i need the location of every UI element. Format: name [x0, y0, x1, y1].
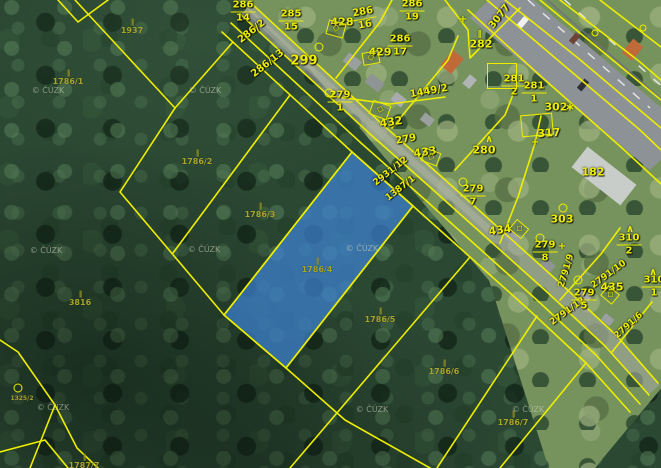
parcel-label: 2791/10 [590, 259, 628, 290]
cuzk-watermark: © ČÚZK [189, 87, 222, 95]
cuzk-watermark: © ČÚZK [30, 247, 63, 255]
forest-parcel-label: ‖1786/4 [302, 258, 333, 274]
parcel-label-fraction: 28614 [231, 1, 256, 24]
forest-caret-icon: ∧ [649, 268, 657, 278]
forest-caret-icon: ∧ [626, 225, 634, 235]
boundary-star-icon: ∗ [565, 102, 574, 113]
parcel-label-fraction: 2795 [572, 289, 597, 312]
cuzk-watermark: © ČÚZK [356, 406, 389, 414]
boundary-cross-icon: + [558, 242, 566, 252]
forest-symbol: ‖ [259, 203, 262, 210]
parcel-label: 299 [290, 55, 317, 68]
forest-symbol: ‖ [83, 454, 86, 461]
parcel-label: 182 [582, 167, 605, 178]
parcel-label: 433 [413, 145, 437, 159]
boundary-cross-icon: + [531, 138, 539, 148]
garage-diamond-icon: ◇ [509, 219, 530, 239]
forest-parcel-label: ‖1786/3 [245, 203, 276, 219]
parcel-label: 282 [470, 39, 493, 50]
forest-symbol: ‖ [316, 258, 319, 265]
forest-parcel-label: ‖1937 [121, 19, 143, 35]
parcel-label-fraction: 3101 [642, 276, 661, 299]
parcel-label: 302 [545, 102, 568, 113]
garage-diamond-icon: ◇ [600, 285, 620, 305]
meadow-parallel-icon: ‖ [478, 30, 481, 38]
forest-parcel-label: 1325/2 [10, 396, 33, 402]
map-viewport[interactable]: 4282994294322794334344353033172802821823… [0, 0, 661, 468]
parcel-label: 1449/2 [409, 84, 449, 101]
parcel-label-fraction: 28619 [400, 0, 425, 23]
forest-parcel-label: ‖1786/1 [53, 70, 84, 86]
building-outline-box [520, 113, 554, 138]
parcel-label-fraction: 28616 [350, 6, 378, 33]
landuse-circle-icon [459, 178, 468, 187]
parcel-label: 432 [379, 115, 403, 129]
forest-parcel-label: ‖1786/5 [365, 308, 396, 324]
parcel-label: 2791/9 [558, 253, 577, 289]
garage-diamond-icon: ◇ [421, 148, 442, 167]
parcel-label: 2791/6 [613, 311, 645, 341]
parcel-label-fraction: 2791 [328, 91, 353, 114]
parcel-label-fraction: 28515 [279, 10, 304, 33]
survey-point-icon [592, 30, 599, 37]
landuse-circle-icon [574, 276, 583, 285]
parcel-label-fraction: 2797 [461, 185, 486, 208]
garage-diamond-icon: ◇ [362, 50, 381, 66]
parcel-label: 286/2 [237, 18, 268, 45]
parcel-label: 1387/1 [385, 175, 418, 203]
landuse-circle-icon [325, 89, 334, 98]
parcel-label: 435 [601, 282, 624, 293]
forest-parcel-label: ‖3816 [69, 291, 91, 307]
forest-symbol: ‖ [67, 70, 70, 77]
parcel-label: 3077 [487, 3, 512, 31]
cuzk-watermark: © ČÚZK [37, 404, 70, 412]
forest-symbol: ‖ [379, 308, 382, 315]
building-outline-box [487, 63, 517, 89]
forest-symbol: ‖ [79, 291, 82, 298]
cuzk-watermark: © ČÚZK [346, 245, 379, 253]
garage-diamond-icon: ◇ [369, 100, 392, 121]
survey-point-icon [640, 25, 647, 32]
parcel-label-fraction: 2811 [522, 82, 547, 105]
parcel-label-fraction: 2798 [533, 241, 558, 264]
parcel-label: 428 [331, 17, 354, 28]
forest-caret-icon: ∧ [485, 135, 493, 145]
parcel-label: 286/13 [250, 48, 286, 80]
boundary-cross-icon: + [459, 15, 467, 25]
forest-symbol: ‖ [443, 360, 446, 367]
parcel-label: 429 [369, 47, 392, 58]
parcel-labels-layer: 4282994294322794334344353033172802821823… [0, 0, 661, 468]
forest-parcel-label: ‖1786/7 [498, 411, 529, 427]
cuzk-watermark: © ČÚZK [512, 406, 545, 414]
parcel-label: 280 [473, 145, 496, 156]
parcel-label-fraction: 3102 [617, 234, 642, 257]
forest-symbol: ‖ [512, 411, 515, 418]
landuse-circle-icon [14, 384, 23, 393]
garage-diamond-icon: ◇ [325, 19, 346, 38]
parcel-label: 317 [537, 127, 561, 140]
landuse-circle-icon [536, 234, 545, 243]
parcel-label-fraction: 2812 [502, 75, 527, 98]
cuzk-watermark: © ČÚZK [188, 246, 221, 254]
parcel-label: 2931/12 [372, 156, 410, 188]
forest-parcel-label: ‖1787/7 [69, 454, 100, 468]
parcel-label: 434 [488, 223, 512, 237]
forest-symbol: ‖ [196, 150, 199, 157]
forest-parcel-label: ‖1786/6 [429, 360, 460, 376]
parcel-label: 279 [395, 133, 417, 146]
forest-parcel-label: ‖1786/2 [182, 150, 213, 166]
cuzk-watermark: © ČÚZK [32, 87, 65, 95]
parcel-label-fraction: 28617 [388, 35, 413, 58]
parcel-label: 303 [551, 214, 574, 225]
forest-symbol: ‖ [131, 19, 134, 26]
parcel-label: 2791/12 [549, 296, 587, 327]
landuse-circle-icon [559, 204, 568, 213]
landuse-circle-icon [315, 43, 324, 52]
